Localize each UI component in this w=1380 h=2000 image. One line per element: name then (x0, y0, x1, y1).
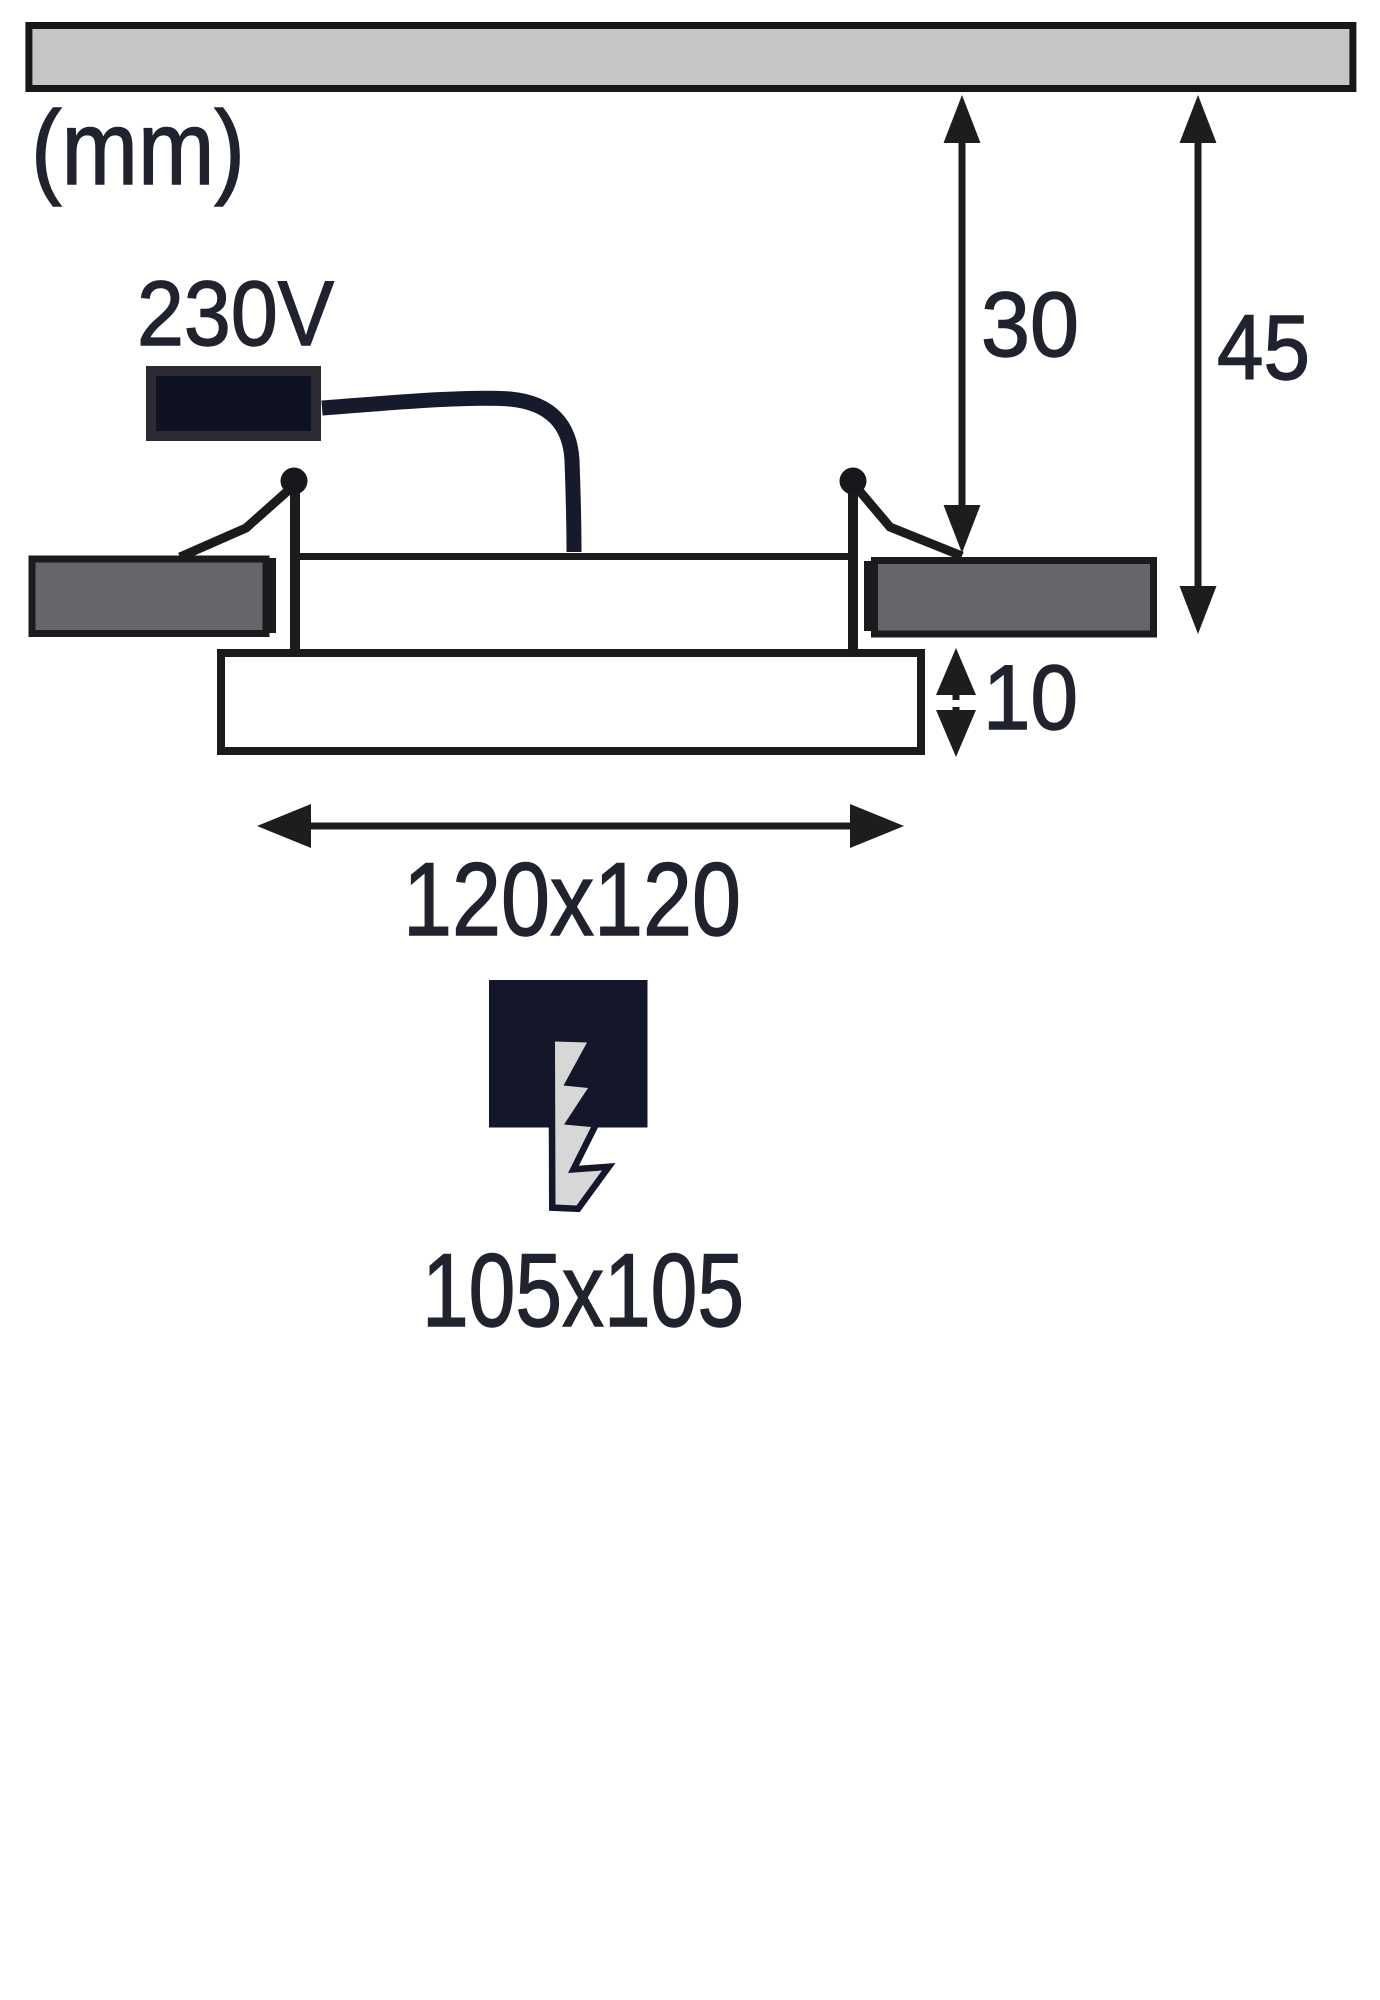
svg-text:30: 30 (981, 274, 1079, 376)
svg-text:10: 10 (983, 647, 1078, 749)
svg-text:(mm): (mm) (31, 90, 245, 207)
svg-text:120x120: 120x120 (403, 842, 741, 958)
svg-text:45: 45 (1217, 297, 1310, 399)
svg-text:105x105: 105x105 (422, 1233, 744, 1349)
svg-text:230V: 230V (137, 263, 334, 365)
